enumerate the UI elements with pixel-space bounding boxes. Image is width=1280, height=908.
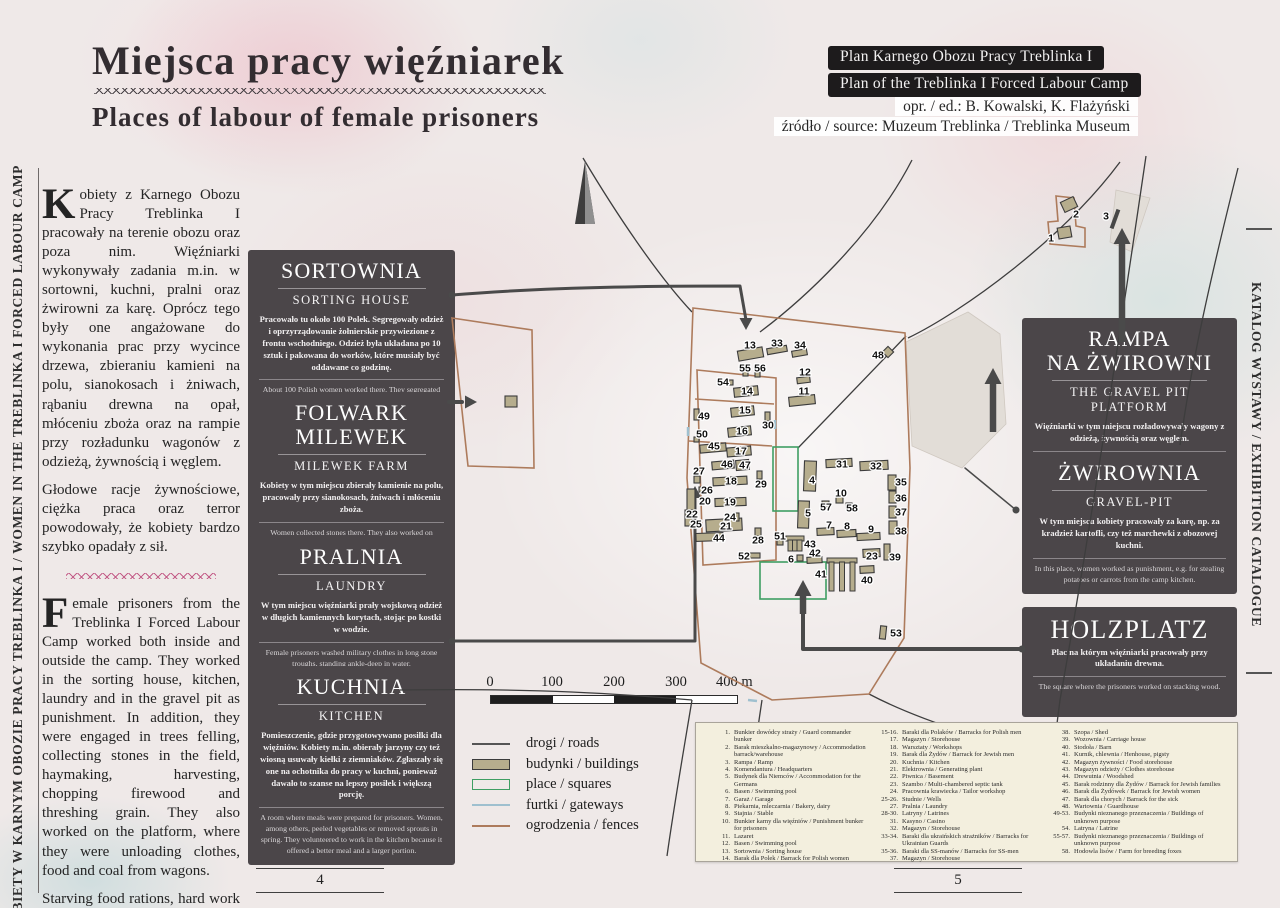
key-number: 6. (702, 788, 734, 795)
info-box-pralnia: PRALNIA LAUNDRY W tym miejscu więźniarki… (248, 536, 455, 678)
key-entry: 20. Kuchnia / Kitchen (870, 759, 1042, 766)
key-label: Barak dla chorych / Barrack for the sick (1074, 796, 1227, 803)
key-entry: 9. Stajnia / Stable (702, 810, 870, 817)
box-subtitle: SORTING HOUSE (259, 293, 444, 308)
key-entry: 39. Wozownia / Carriage house (1042, 736, 1227, 743)
info-box-folwark-milewek: FOLWARKMILEWEK MILEWEK FARM Kobiety w ty… (248, 392, 455, 558)
key-label: Garaż / Garage (734, 796, 870, 803)
key-entry: 43. Magazyn odzieży / Clothes storehouse (1042, 766, 1227, 773)
box-text-pl: Pomieszczenie, gdzie przygotowywano posi… (259, 730, 444, 801)
key-label: Piekarnia, mleczarnia / Bakery, dairy (734, 803, 870, 810)
key-label: Bunkier karny dla więźniów / Punishment … (734, 818, 870, 833)
key-entry: 6. Basen / Swimming pool (702, 788, 870, 795)
box-text-en: A room where meals were prepared for pri… (259, 813, 444, 856)
key-entry: 58. Hodowla lisów / Farm for breeding fo… (1042, 848, 1227, 855)
key-label: Pralnia / Laundry (902, 803, 1042, 810)
key-entry: 22. Piwnica / Basement (870, 773, 1042, 780)
key-number: 55-57. (1042, 833, 1074, 848)
key-entry: 14. Barak dla Polek / Barrack for Polish… (702, 855, 870, 862)
key-entry: 12. Basen / Swimming pool (702, 840, 870, 847)
left-sidebar-text: KOBIETY W KARNYM OBOZIE PRACY TREBLINKA … (10, 165, 26, 908)
key-number: 9. (702, 810, 734, 817)
box-text-pl: Plac na którym więźniarki pracowały przy… (1033, 647, 1226, 671)
svg-text:14: 14 (741, 386, 753, 398)
key-entry: 5. Budynek dla Niemców / Accommodation f… (702, 773, 870, 788)
box-text-pl: Więźniarki w tym miejscu rozładowywały w… (1033, 421, 1226, 445)
svg-text:26: 26 (701, 485, 713, 497)
key-label: Barak dla Żydówek / Barrack for Jewish w… (1074, 788, 1227, 795)
key-label: Latryna / Latrine (1074, 825, 1227, 832)
right-sidebar-rule-bottom (1246, 672, 1272, 674)
key-entry: 13. Sortownia / Sorting house (702, 848, 870, 855)
key-number: 8. (702, 803, 734, 810)
legend-label: drogi / roads (526, 735, 599, 752)
key-label: Elektrownia / Generating plant (902, 766, 1042, 773)
svg-text:23: 23 (866, 551, 878, 563)
key-entry: 19. Barak dla Żydów / Barrack for Jewish… (870, 751, 1042, 758)
box-text-pl: Pracowało tu około 100 Polek. Segregował… (259, 314, 444, 373)
box-text-pl: W tym miejscu więźniarki prały wojskową … (259, 600, 444, 636)
key-entry: 24. Pracownia krawiecka / Tailor worksho… (870, 788, 1042, 795)
intro-paragraph-pl-2: Głodowe racje żywnościowe, ciężka praca … (42, 481, 240, 557)
key-label: Lazaret (734, 833, 870, 840)
legend-row: ogrodzenia / fences (472, 817, 692, 834)
key-number: 12. (702, 840, 734, 847)
key-number: 49-53. (1042, 810, 1074, 825)
key-number: 31. (870, 818, 902, 825)
credits: opr. / ed.: B. Kowalski, K. Flażyński źr… (700, 97, 1138, 137)
svg-text:5: 5 (805, 508, 811, 520)
right-sidebar: KATALOG WYSTAWY / EXHIBITION CATALOGUE (1248, 240, 1264, 668)
key-entry: 47. Barak dla chorych / Barrack for the … (1042, 796, 1227, 803)
box-title: KUCHNIA (259, 675, 444, 699)
key-entry: 38. Szopa / Shed (1042, 729, 1227, 736)
divider (278, 454, 426, 455)
svg-text:2: 2 (1073, 209, 1079, 221)
svg-text:7: 7 (826, 520, 832, 532)
box-title: PRALNIA (259, 545, 444, 569)
svg-text:15: 15 (739, 405, 751, 417)
key-entry: 8. Piekarnia, mleczarnia / Bakery, dairy (702, 803, 870, 810)
key-label: Komendantura / Headquarters (734, 766, 870, 773)
key-number: 24. (870, 788, 902, 795)
key-label: Stodoła / Barn (1074, 744, 1227, 751)
key-entry: 46. Barak dla Żydówek / Barrack for Jewi… (1042, 788, 1227, 795)
key-label: Magazyn odzieży / Clothes storehouse (1074, 766, 1227, 773)
key-number: 28-30. (870, 810, 902, 817)
key-number: 40. (1042, 744, 1074, 751)
svg-text:17: 17 (735, 446, 747, 458)
key-label: Wozownia / Carriage house (1074, 736, 1227, 743)
key-entry: 54. Latryna / Latrine (1042, 825, 1227, 832)
legend-label: budynki / buildings (526, 756, 639, 773)
svg-text:33: 33 (771, 338, 783, 350)
key-entry: 1. Bunkier dowódcy straży / Guard comman… (702, 729, 870, 744)
key-number: 7. (702, 796, 734, 803)
key-number: 35-36. (870, 848, 902, 855)
key-label: Kasyno / Casino (902, 818, 1042, 825)
key-label: Studnie / Wells (902, 796, 1042, 803)
svg-text:31: 31 (836, 459, 848, 471)
svg-text:46: 46 (721, 459, 733, 471)
svg-text:21: 21 (720, 521, 732, 533)
key-label: Baraki dla Polaków / Barracks for Polish… (902, 729, 1042, 736)
legend-symbol (472, 759, 510, 770)
key-label: Barak mieszkalno-magazynowy / Accommodat… (734, 744, 870, 759)
svg-text:3: 3 (1103, 211, 1109, 223)
left-sidebar-rule (38, 168, 39, 893)
key-entry: 44. Drewutnia / Woodshed (1042, 773, 1227, 780)
box-title: RAMPANA ŻWIROWNI (1033, 327, 1226, 375)
key-label: Barak dla Polek / Barrack for Polish wom… (734, 855, 870, 862)
key-label: Bunkier dowódcy straży / Guard commander… (734, 729, 870, 744)
key-number: 42. (1042, 759, 1074, 766)
key-label: Barak rodzinny dla Żydów / Barrack for J… (1074, 781, 1227, 788)
svg-text:19: 19 (724, 497, 736, 509)
key-number: 46. (1042, 788, 1074, 795)
key-number: 13. (702, 848, 734, 855)
key-label: Magazyn / Storehouse (902, 855, 1042, 862)
key-number: 2. (702, 744, 734, 759)
key-entry: 32. Magazyn / Storehouse (870, 825, 1042, 832)
legend-label: ogrodzenia / fences (526, 817, 639, 834)
key-entry: 25-26. Studnie / Wells (870, 796, 1042, 803)
key-label: Basen / Swimming pool (734, 840, 870, 847)
box-text-en: In this place, women worked as punishmen… (1033, 564, 1226, 586)
box-subtitle: GRAVEL-PIT (1033, 495, 1226, 510)
svg-text:41: 41 (815, 569, 827, 581)
key-label: Kurnik, chlewnia / Henhouse, pigsty (1074, 751, 1227, 758)
key-entry: 27. Pralnia / Laundry (870, 803, 1042, 810)
svg-text:56: 56 (754, 363, 766, 375)
svg-text:8: 8 (844, 521, 850, 533)
scale-tick-label: 100 (541, 674, 563, 691)
dropcap-en: F (42, 595, 72, 631)
key-label: Rampa / Ramp (734, 759, 870, 766)
key-label: Magazyn / Storehouse (902, 736, 1042, 743)
scale-tick-label: 300 (665, 674, 687, 691)
key-entry: 40. Stodoła / Barn (1042, 744, 1227, 751)
key-number: 19. (870, 751, 902, 758)
svg-text:30: 30 (762, 420, 774, 432)
divider (278, 574, 426, 575)
key-entry: 7. Garaż / Garage (702, 796, 870, 803)
pink-divider (66, 573, 216, 579)
key-label: Piwnica / Basement (902, 773, 1042, 780)
svg-text:25: 25 (690, 519, 702, 531)
key-number: 44. (1042, 773, 1074, 780)
key-number: 4. (702, 766, 734, 773)
plan-badge-en: Plan of the Treblinka I Forced Labour Ca… (828, 73, 1141, 97)
map-legend: drogi / roads budynki / buildings place … (472, 735, 692, 838)
building-key-panel: 1. Bunkier dowódcy straży / Guard comman… (695, 722, 1238, 862)
map-scale-bar: 0100200300400 m (490, 674, 738, 704)
legend-label: furtki / gateways (526, 797, 623, 814)
key-number: 14. (702, 855, 734, 862)
key-number: 20. (870, 759, 902, 766)
box-text-pl: Kobiety w tym miejscu zbierały kamienie … (259, 480, 444, 516)
credit-source: źródło / source: Muzeum Treblinka / Treb… (774, 117, 1138, 136)
divider (259, 642, 444, 643)
plan-badge-pl: Plan Karnego Obozu Pracy Treblinka I (828, 46, 1104, 70)
key-number: 15-16. (870, 729, 902, 736)
key-entry: 3. Rampa / Ramp (702, 759, 870, 766)
scale-tick-label: 200 (603, 674, 625, 691)
key-number: 32. (870, 825, 902, 832)
svg-text:54: 54 (717, 377, 729, 389)
key-label: Hodowla lisów / Farm for breeding foxes (1074, 848, 1227, 855)
key-label: Budynki nieznanego przeznaczenia / Build… (1074, 833, 1227, 848)
svg-text:29: 29 (755, 479, 767, 491)
key-entry: 33-34. Baraki dla ukraińskich strażników… (870, 833, 1042, 848)
box-text-en: The square where the prisoners worked on… (1033, 682, 1226, 693)
key-number: 21. (870, 766, 902, 773)
svg-text:57: 57 (820, 502, 832, 514)
key-number: 58. (1042, 848, 1074, 855)
key-number: 23. (870, 781, 902, 788)
svg-text:42: 42 (809, 548, 821, 560)
key-label: Kuchnia / Kitchen (902, 759, 1042, 766)
key-entry: 37. Magazyn / Storehouse (870, 855, 1042, 862)
legend-symbol (472, 804, 510, 806)
key-label: Magazyn żywności / Food storehouse (1074, 759, 1227, 766)
svg-text:44: 44 (713, 533, 725, 545)
svg-text:50: 50 (696, 429, 708, 441)
intro-paragraph-pl: Kobiety z Karnego Obozu Pracy Treblinka … (42, 186, 240, 472)
legend-row: drogi / roads (472, 735, 692, 752)
key-number: 27. (870, 803, 902, 810)
key-entry: 4. Komendantura / Headquarters (702, 766, 870, 773)
key-label: Szambo / Multi-chambered septic tank (902, 781, 1042, 788)
key-label: Barak dla Żydów / Barrack for Jewish men (902, 751, 1042, 758)
svg-text:43: 43 (804, 539, 816, 551)
key-number: 38. (1042, 729, 1074, 736)
box-title: FOLWARKMILEWEK (259, 401, 444, 449)
scale-labels: 0100200300400 m (490, 674, 738, 692)
key-entry: 41. Kurnik, chlewnia / Henhouse, pigsty (1042, 751, 1227, 758)
catalogue-page: 1234567891011121314151617181920212223242… (0, 0, 1280, 908)
key-number: 25-26. (870, 796, 902, 803)
key-number: 54. (1042, 825, 1074, 832)
key-label: Baraki dla SS-manów / Barracks for SS-me… (902, 848, 1042, 855)
page-number-right: 5 (894, 868, 1022, 893)
key-number: 48. (1042, 803, 1074, 810)
svg-text:39: 39 (889, 552, 901, 564)
divider (259, 807, 444, 808)
divider (278, 288, 426, 289)
key-number: 18. (870, 744, 902, 751)
info-box-zwirownia: ŻWIROWNIA GRAVEL-PIT W tym miejscu kobie… (1022, 452, 1237, 594)
svg-text:27: 27 (693, 466, 705, 478)
key-number: 45. (1042, 781, 1074, 788)
key-entry: 28-30. Latryny / Latrines (870, 810, 1042, 817)
svg-text:9: 9 (868, 524, 874, 536)
key-label: Szopa / Shed (1074, 729, 1227, 736)
svg-text:32: 32 (870, 461, 882, 473)
key-label: Budynek dla Niemców / Accommodation for … (734, 773, 870, 788)
svg-text:11: 11 (798, 386, 809, 398)
key-number: 43. (1042, 766, 1074, 773)
scale-tick-label: 0 (486, 674, 493, 691)
page-number-left: 4 (256, 868, 384, 893)
key-number: 41. (1042, 751, 1074, 758)
intro-paragraph-en-2: Starving food rations, hard work and ter… (42, 890, 240, 908)
box-subtitle: LAUNDRY (259, 579, 444, 594)
key-number: 1. (702, 729, 734, 744)
key-entry: 48. Wartownia / Guardhouse (1042, 803, 1227, 810)
divider (1052, 380, 1206, 381)
key-column-3: 38. Szopa / Shed 39. Wozownia / Carriage… (1042, 729, 1227, 855)
key-number: 3. (702, 759, 734, 766)
key-entry: 10. Bunkier karny dla więźniów / Punishm… (702, 818, 870, 833)
svg-text:13: 13 (744, 340, 756, 352)
scale-tick-label: 400 m (716, 674, 753, 691)
credit-editors: opr. / ed.: B. Kowalski, K. Flażyński (895, 97, 1138, 116)
key-number: 37. (870, 855, 902, 862)
svg-text:40: 40 (861, 575, 873, 587)
right-sidebar-rule-top (1246, 228, 1272, 230)
key-label: Baraki dla ukraińskich strażników / Barr… (902, 833, 1042, 848)
intro-paragraph-en: Female prisoners from the Treblinka I Fo… (42, 595, 240, 881)
key-label: Pracownia krawiecka / Tailor workshop (902, 788, 1042, 795)
key-entry: 21. Elektrownia / Generating plant (870, 766, 1042, 773)
key-label: Stajnia / Stable (734, 810, 870, 817)
svg-text:34: 34 (794, 340, 806, 352)
svg-text:48: 48 (872, 350, 884, 362)
svg-text:58: 58 (846, 503, 858, 515)
intro-column: Kobiety z Karnego Obozu Pracy Treblinka … (42, 186, 240, 908)
box-subtitle: THE GRAVEL PIT PLATFORM (1033, 385, 1226, 415)
divider (1033, 676, 1226, 677)
key-entry: 31. Kasyno / Casino (870, 818, 1042, 825)
legend-row: furtki / gateways (472, 797, 692, 814)
legend-symbol (472, 779, 510, 790)
key-number: 10. (702, 818, 734, 833)
legend-symbol (472, 743, 510, 745)
svg-text:47: 47 (739, 460, 751, 472)
divider (259, 379, 444, 380)
key-label: Sortownia / Sorting house (734, 848, 870, 855)
page-title: Miejsca pracy więźniarek (92, 40, 565, 82)
divider (1033, 558, 1226, 559)
box-text-pl: W tym miejscu kobiety pracowały za karę,… (1033, 516, 1226, 552)
svg-text:18: 18 (725, 476, 737, 488)
key-entry: 55-57. Budynki nieznanego przeznaczenia … (1042, 833, 1227, 848)
key-label: Warsztaty / Workshops (902, 744, 1042, 751)
key-number: 22. (870, 773, 902, 780)
svg-text:12: 12 (799, 367, 811, 379)
key-entry: 45. Barak rodzinny dla Żydów / Barrack f… (1042, 781, 1227, 788)
key-number: 39. (1042, 736, 1074, 743)
box-title: HOLZPLATZ (1033, 616, 1226, 645)
key-entry: 42. Magazyn żywności / Food storehouse (1042, 759, 1227, 766)
key-entry: 23. Szambo / Multi-chambered septic tank (870, 781, 1042, 788)
divider (278, 704, 426, 705)
scale-segments (490, 695, 738, 704)
box-subtitle: KITCHEN (259, 709, 444, 724)
svg-text:24: 24 (724, 512, 736, 524)
key-entry: 11. Lazaret (702, 833, 870, 840)
info-box-holzplatz: HOLZPLATZ Plac na którym więźniarki prac… (1022, 607, 1237, 717)
svg-text:4: 4 (809, 475, 815, 487)
page-subtitle: Places of labour of female prisoners (92, 102, 565, 133)
svg-text:6: 6 (788, 554, 794, 566)
legend-label: place / squares (526, 776, 611, 793)
key-column-2: 15-16. Baraki dla Polaków / Barracks for… (870, 729, 1042, 855)
svg-text:20: 20 (699, 496, 711, 508)
legend-symbol (472, 825, 510, 827)
legend-row: budynki / buildings (472, 756, 692, 773)
svg-text:10: 10 (835, 488, 847, 500)
box-title: SORTOWNIA (259, 259, 444, 283)
key-number: 17. (870, 736, 902, 743)
key-entry: 15-16. Baraki dla Polaków / Barracks for… (870, 729, 1042, 736)
svg-text:35: 35 (895, 477, 907, 489)
title-divider (94, 88, 546, 94)
svg-text:37: 37 (895, 507, 907, 519)
svg-text:53: 53 (890, 628, 902, 640)
dropcap-pl: K (42, 186, 79, 222)
key-number: 47. (1042, 796, 1074, 803)
svg-text:38: 38 (895, 526, 907, 538)
key-label: Magazyn / Storehouse (902, 825, 1042, 832)
svg-text:45: 45 (708, 441, 720, 453)
box-title: ŻWIROWNIA (1033, 461, 1226, 485)
right-sidebar-text: KATALOG WYSTAWY / EXHIBITION CATALOGUE (1248, 282, 1264, 627)
svg-text:1: 1 (1048, 233, 1054, 245)
left-sidebar: KOBIETY W KARNYM OBOZIE PRACY TREBLINKA … (10, 165, 26, 898)
svg-text:51: 51 (774, 531, 786, 543)
key-entry: 17. Magazyn / Storehouse (870, 736, 1042, 743)
legend-row: place / squares (472, 776, 692, 793)
key-number: 11. (702, 833, 734, 840)
key-entry: 18. Warsztaty / Workshops (870, 744, 1042, 751)
key-entry: 2. Barak mieszkalno-magazynowy / Accommo… (702, 744, 870, 759)
key-number: 5. (702, 773, 734, 788)
key-entry: 49-53. Budynki nieznanego przeznaczenia … (1042, 810, 1227, 825)
key-label: Budynki nieznanego przeznaczenia / Build… (1074, 810, 1227, 825)
svg-text:49: 49 (698, 411, 710, 423)
svg-text:16: 16 (736, 426, 748, 438)
svg-text:22: 22 (686, 509, 698, 521)
box-subtitle: MILEWEK FARM (259, 459, 444, 474)
key-label: Latryny / Latrines (902, 810, 1042, 817)
divider (259, 522, 444, 523)
key-label: Wartownia / Guardhouse (1074, 803, 1227, 810)
title-block: Miejsca pracy więźniarek Places of labou… (92, 40, 565, 133)
svg-text:36: 36 (895, 493, 907, 505)
divider (1052, 490, 1206, 491)
info-box-kuchnia: KUCHNIA KITCHEN Pomieszczenie, gdzie prz… (248, 666, 455, 865)
svg-text:52: 52 (738, 551, 750, 563)
key-column-1: 1. Bunkier dowódcy straży / Guard comman… (702, 729, 870, 855)
key-label: Drewutnia / Woodshed (1074, 773, 1227, 780)
svg-text:55: 55 (739, 363, 751, 375)
key-entry: 35-36. Baraki dla SS-manów / Barracks fo… (870, 848, 1042, 855)
key-label: Basen / Swimming pool (734, 788, 870, 795)
svg-text:28: 28 (752, 535, 764, 547)
key-number: 33-34. (870, 833, 902, 848)
